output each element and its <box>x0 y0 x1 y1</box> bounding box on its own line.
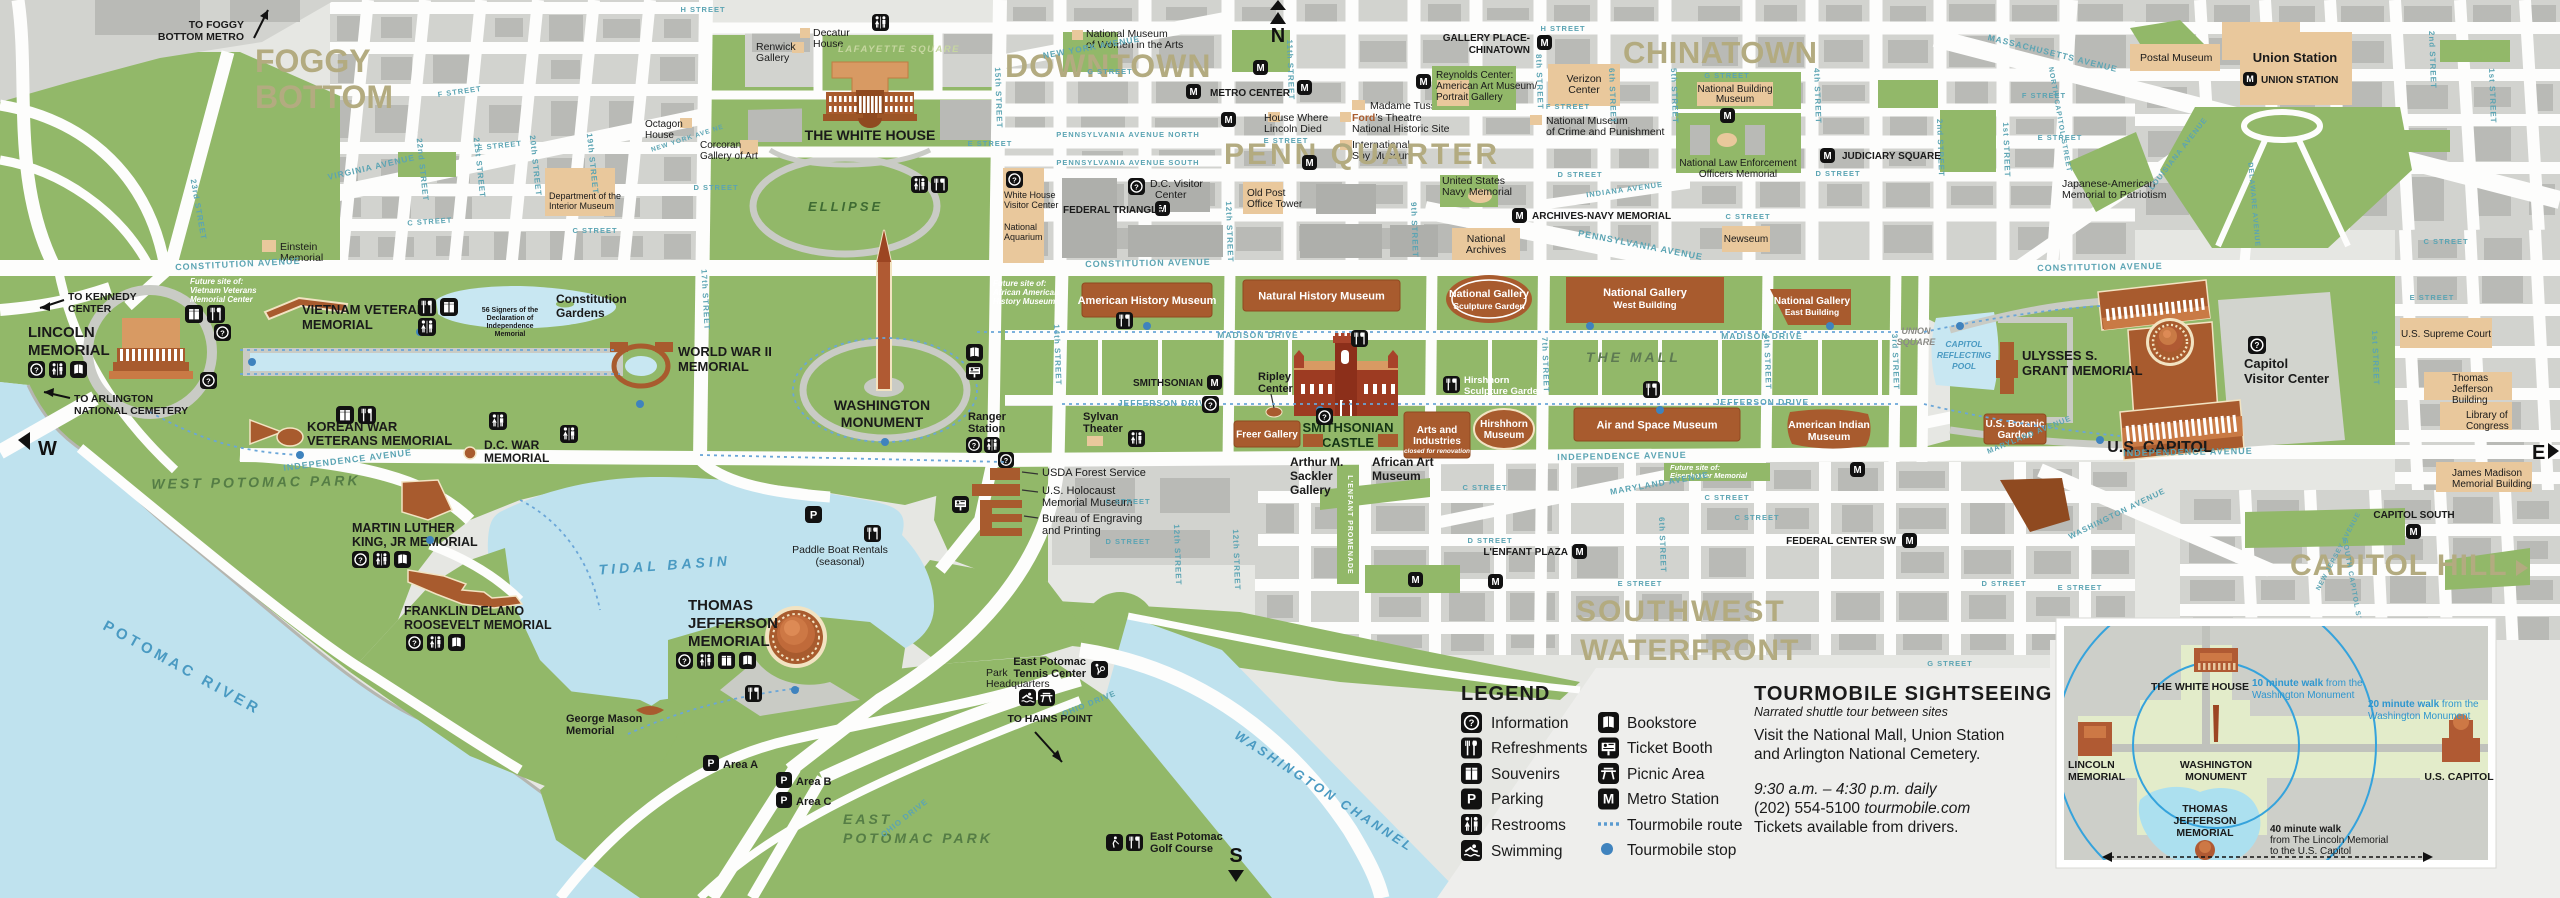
svg-text:Newseum: Newseum <box>1724 234 1768 245</box>
svg-text:LEGEND: LEGEND <box>1461 683 1550 705</box>
svg-text:D STREET: D STREET <box>1981 579 2026 588</box>
svg-text:MEMORIAL: MEMORIAL <box>302 317 373 332</box>
svg-text:PENNSYLVANIA AVENUE NORTH: PENNSYLVANIA AVENUE NORTH <box>1056 130 1200 139</box>
svg-text:40 minute walk: 40 minute walk <box>2270 824 2342 835</box>
svg-text:9:30 a.m. – 4:30 p.m. daily: 9:30 a.m. – 4:30 p.m. daily <box>1754 781 1938 798</box>
svg-text:JEFFERSON: JEFFERSON <box>688 615 778 632</box>
svg-text:TO ARLINGTON: TO ARLINGTON <box>74 393 153 405</box>
svg-text:POOL: POOL <box>1952 361 1976 371</box>
svg-text:?: ? <box>34 365 39 374</box>
svg-text:National Gallery: National Gallery <box>1603 287 1688 299</box>
svg-text:20 minute walk from the: 20 minute walk from the <box>2368 699 2479 710</box>
svg-text:POTOMAC PARK: POTOMAC PARK <box>843 830 993 846</box>
svg-text:?: ? <box>1322 412 1327 421</box>
svg-text:PENNSYLVANIA AVENUE SOUTH: PENNSYLVANIA AVENUE SOUTH <box>1056 158 1199 167</box>
svg-text:Reynolds Center:: Reynolds Center: <box>1436 70 1513 81</box>
svg-text:?: ? <box>972 441 976 450</box>
svg-text:?: ? <box>1004 456 1008 465</box>
svg-text:Restrooms: Restrooms <box>1491 817 1566 834</box>
svg-text:closed for renovation: closed for renovation <box>1404 448 1470 455</box>
svg-text:ROOSEVELT MEMORIAL: ROOSEVELT MEMORIAL <box>404 618 552 632</box>
svg-text:USDA Forest Service: USDA Forest Service <box>1042 467 1146 479</box>
svg-text:FEDERAL CENTER SW: FEDERAL CENTER SW <box>1786 536 1896 547</box>
svg-text:Museum: Museum <box>1372 469 1421 483</box>
svg-text:P: P <box>708 759 715 770</box>
svg-text:Union Station: Union Station <box>2253 50 2338 65</box>
svg-text:N: N <box>1271 25 1285 47</box>
svg-text:VETERANS MEMORIAL: VETERANS MEMORIAL <box>307 433 452 448</box>
svg-text:TOURMOBILE SIGHTSEEING: TOURMOBILE SIGHTSEEING <box>1754 683 2052 705</box>
svg-text:D STREET: D STREET <box>1105 537 1150 546</box>
svg-text:Memorial Center: Memorial Center <box>190 295 254 304</box>
svg-text:E STREET: E STREET <box>2058 583 2103 592</box>
svg-text:Arthur M.: Arthur M. <box>1290 455 1343 469</box>
svg-text:S: S <box>1229 845 1242 867</box>
svg-text:Library of: Library of <box>2466 410 2508 421</box>
svg-text:Memorial to Patriotism: Memorial to Patriotism <box>2062 189 2167 201</box>
svg-text:CAPITOL SOUTH: CAPITOL SOUTH <box>2373 510 2454 521</box>
svg-text:D STREET: D STREET <box>693 183 738 192</box>
svg-text:Freer Gallery: Freer Gallery <box>1236 430 1298 441</box>
svg-text:Area A: Area A <box>723 759 758 771</box>
svg-text:Old Post: Old Post <box>1247 188 1286 199</box>
svg-text:FEDERAL TRIANGLE: FEDERAL TRIANGLE <box>1063 205 1164 216</box>
svg-text:Department of the: Department of the <box>549 191 621 201</box>
svg-text:TO FOGGY: TO FOGGY <box>189 19 244 31</box>
svg-text:Hirshhorn: Hirshhorn <box>1464 375 1510 386</box>
svg-text:H STREET: H STREET <box>1540 24 1585 33</box>
svg-text:Center: Center <box>1258 383 1294 395</box>
svg-text:?: ? <box>1469 718 1475 729</box>
svg-text:Sackler: Sackler <box>1290 469 1333 483</box>
svg-text:Constitution: Constitution <box>556 292 627 306</box>
svg-text:SOUTHWEST: SOUTHWEST <box>1576 595 1786 628</box>
svg-text:E STREET: E STREET <box>1264 136 1309 145</box>
svg-text:Sculpture Garden: Sculpture Garden <box>1464 386 1544 397</box>
svg-text:THOMAS: THOMAS <box>2182 803 2228 815</box>
svg-text:THE MALL: THE MALL <box>1586 349 1681 365</box>
svg-text:56 Signers of the: 56 Signers of the <box>482 307 539 314</box>
svg-text:West Building: West Building <box>1613 300 1676 311</box>
svg-text:House: House <box>645 130 674 141</box>
svg-text:WASHINGTON: WASHINGTON <box>2180 759 2252 771</box>
svg-text:History Museum: History Museum <box>993 297 1055 306</box>
svg-text:Office Tower: Office Tower <box>1247 199 1303 210</box>
svg-text:G STREET: G STREET <box>1704 71 1750 80</box>
svg-text:M: M <box>1300 83 1308 94</box>
svg-text:National: National <box>1004 222 1037 232</box>
svg-text:Souvenirs: Souvenirs <box>1491 766 1560 783</box>
svg-text:U.S. Holocaust: U.S. Holocaust <box>1042 485 1115 497</box>
svg-text:?: ? <box>412 638 417 647</box>
svg-text:George Mason: George Mason <box>566 713 643 725</box>
svg-text:G STREET: G STREET <box>1087 67 1133 76</box>
svg-text:C STREET: C STREET <box>1704 493 1749 502</box>
svg-text:Tourmobile route: Tourmobile route <box>1627 817 1742 834</box>
svg-text:BOTTOM: BOTTOM <box>255 79 393 115</box>
svg-text:SQUARE: SQUARE <box>1897 337 1937 347</box>
svg-text:M: M <box>1419 77 1427 88</box>
svg-text:Metro Station: Metro Station <box>1627 791 1719 808</box>
svg-text:WATERFRONT: WATERFRONT <box>1580 634 1799 667</box>
svg-text:Memorial: Memorial <box>566 725 614 737</box>
svg-text:Gallery: Gallery <box>756 52 790 64</box>
svg-text:MEMORIAL: MEMORIAL <box>484 451 549 465</box>
svg-text:E STREET: E STREET <box>1618 579 1663 588</box>
svg-text:East Building: East Building <box>1785 307 1839 317</box>
svg-text:African Art: African Art <box>1372 455 1434 469</box>
svg-text:Sylvan: Sylvan <box>1083 411 1119 423</box>
svg-text:Gallery of Art: Gallery of Art <box>700 151 758 162</box>
svg-text:Refreshments: Refreshments <box>1491 740 1588 757</box>
svg-text:Visitor Center: Visitor Center <box>2244 371 2329 386</box>
svg-text:E STREET: E STREET <box>968 139 1013 148</box>
svg-text:MONUMENT: MONUMENT <box>2185 771 2247 783</box>
svg-text:FOGGY: FOGGY <box>255 43 371 79</box>
svg-text:CHINATOWN: CHINATOWN <box>1469 45 1530 56</box>
svg-text:Information: Information <box>1491 715 1569 732</box>
svg-text:Congress: Congress <box>2466 421 2509 432</box>
svg-text:M: M <box>1305 158 1313 169</box>
svg-text:C STREET: C STREET <box>1725 212 1770 221</box>
svg-text:?: ? <box>1012 175 1017 184</box>
svg-text:East Potomac: East Potomac <box>1013 656 1086 668</box>
svg-text:Golf Course: Golf Course <box>1150 843 1213 855</box>
svg-text:American Indian: American Indian <box>1788 419 1870 431</box>
svg-text:Officers Memorial: Officers Memorial <box>1699 169 1777 180</box>
svg-text:Bureau of Engraving: Bureau of Engraving <box>1042 513 1142 525</box>
svg-text:WORLD WAR II: WORLD WAR II <box>678 344 772 359</box>
svg-text:D STREET: D STREET <box>1557 170 1602 179</box>
svg-text:MARTIN LUTHER: MARTIN LUTHER <box>352 521 455 535</box>
svg-text:Center: Center <box>1568 84 1600 96</box>
svg-text:Archives: Archives <box>1466 244 1506 256</box>
svg-text:P: P <box>1467 792 1476 807</box>
svg-text:M: M <box>2246 74 2254 84</box>
svg-text:Vietnam Veterans: Vietnam Veterans <box>190 286 257 295</box>
svg-text:C STREET: C STREET <box>1105 497 1150 506</box>
svg-text:M: M <box>1575 547 1583 558</box>
svg-text:F STREET: F STREET <box>2022 91 2066 100</box>
svg-text:Area B: Area B <box>796 776 832 788</box>
svg-text:National Law Enforcement: National Law Enforcement <box>1679 158 1797 169</box>
svg-text:M: M <box>1853 465 1861 476</box>
svg-text:C STREET: C STREET <box>1734 513 1779 522</box>
svg-text:Parking: Parking <box>1491 791 1544 808</box>
svg-text:Narrated shuttle tour between: Narrated shuttle tour between sites <box>1754 705 1948 719</box>
svg-text:and Arlington National Cemeter: and Arlington National Cemetery. <box>1754 746 1980 763</box>
svg-text:M: M <box>2409 527 2417 538</box>
svg-text:Area C: Area C <box>796 796 832 808</box>
svg-text:CHINATOWN: CHINATOWN <box>1623 35 1818 70</box>
svg-text:Ripley: Ripley <box>1258 371 1292 383</box>
svg-text:Declaration of: Declaration of <box>487 315 534 322</box>
svg-text:to the U.S. Capitol: to the U.S. Capitol <box>2270 846 2351 857</box>
svg-text:DOWNTOWN: DOWNTOWN <box>1005 48 1211 84</box>
svg-text:LINCOLN: LINCOLN <box>2068 759 2115 771</box>
svg-text:National Gallery: National Gallery <box>1449 288 1529 300</box>
svg-text:?: ? <box>1134 182 1139 191</box>
svg-text:African American: African American <box>992 288 1059 297</box>
svg-text:Museum: Museum <box>1808 431 1851 443</box>
svg-text:MONUMENT: MONUMENT <box>841 414 924 430</box>
svg-text:Natural History Museum: Natural History Museum <box>1258 290 1385 302</box>
svg-text:Gardens: Gardens <box>556 306 605 320</box>
svg-text:Tennis Center: Tennis Center <box>1013 668 1086 680</box>
svg-text:Bookstore: Bookstore <box>1627 715 1697 732</box>
svg-text:MEMORIAL: MEMORIAL <box>688 633 770 650</box>
svg-text:M: M <box>1189 87 1197 98</box>
svg-text:L'ENFANT PROMENADE: L'ENFANT PROMENADE <box>1346 475 1353 574</box>
svg-text:MEMORIAL: MEMORIAL <box>678 359 749 374</box>
svg-text:Ticket Booth: Ticket Booth <box>1627 740 1713 757</box>
svg-text:MEMORIAL: MEMORIAL <box>28 342 110 359</box>
svg-text:Aquarium: Aquarium <box>1004 232 1043 242</box>
svg-text:Interior Museum: Interior Museum <box>549 201 614 211</box>
svg-text:Center: Center <box>1155 189 1187 201</box>
svg-text:Theater: Theater <box>1083 423 1123 435</box>
svg-text:Station: Station <box>968 423 1006 435</box>
svg-text:Ranger: Ranger <box>968 411 1007 423</box>
svg-text:CASTLE: CASTLE <box>1322 435 1374 450</box>
svg-text:M: M <box>1210 378 1218 389</box>
svg-text:Thomas: Thomas <box>2452 373 2488 384</box>
svg-text:Museum: Museum <box>1716 94 1754 105</box>
svg-text:Air and Space Museum: Air and Space Museum <box>1596 419 1717 431</box>
svg-text:F STREET: F STREET <box>1546 102 1590 111</box>
svg-text:METRO CENTER: METRO CENTER <box>1210 88 1291 99</box>
svg-text:East Potomac: East Potomac <box>1150 831 1223 843</box>
svg-text:Building: Building <box>2452 395 2488 406</box>
svg-text:Gallery: Gallery <box>1290 483 1331 497</box>
svg-text:SMITHSONIAN: SMITHSONIAN <box>1303 420 1394 435</box>
svg-text:ELLIPSE: ELLIPSE <box>808 199 883 214</box>
svg-text:James Madison: James Madison <box>2452 468 2522 479</box>
svg-text:M: M <box>1905 536 1913 547</box>
svg-text:Future site of:: Future site of: <box>190 277 244 286</box>
svg-text:CENTER: CENTER <box>68 303 112 315</box>
svg-text:GRANT MEMORIAL: GRANT MEMORIAL <box>2022 363 2143 378</box>
svg-text:Washington Monument: Washington Monument <box>2252 690 2355 701</box>
svg-text:(202) 554-5100 tourmobile.c: (202) 554-5100 tourmobile.com <box>1754 800 1970 817</box>
svg-text:EAST: EAST <box>843 811 892 827</box>
svg-text:TO HAINS POINT: TO HAINS POINT <box>1008 713 1094 725</box>
svg-text:Lincoln Died: Lincoln Died <box>1264 123 1322 135</box>
svg-text:THE WHITE HOUSE: THE WHITE HOUSE <box>805 127 936 143</box>
svg-text:American History Museum: American History Museum <box>1078 295 1217 307</box>
svg-text:?: ? <box>206 376 211 385</box>
svg-text:P: P <box>781 796 788 807</box>
svg-text:ARCHIVES-NAVY MEMORIAL: ARCHIVES-NAVY MEMORIAL <box>1532 211 1671 222</box>
svg-text:Portrait Gallery: Portrait Gallery <box>1436 92 1503 103</box>
svg-text:G STREET: G STREET <box>1927 659 1973 668</box>
svg-text:D STREET: D STREET <box>1815 169 1860 178</box>
svg-text:M: M <box>1823 151 1831 162</box>
svg-text:THOMAS: THOMAS <box>688 597 753 614</box>
svg-text:National Gallery: National Gallery <box>1774 296 1851 307</box>
svg-text:Visit the National Mall, Union: Visit the National Mall, Union Station <box>1754 727 2004 744</box>
svg-text:NATIONAL CEMETERY: NATIONAL CEMETERY <box>74 405 188 417</box>
svg-text:C STREET: C STREET <box>572 226 617 235</box>
svg-text:10 minute walk from the: 10 minute walk from the <box>2252 678 2363 689</box>
svg-text:(seasonal): (seasonal) <box>815 556 864 568</box>
svg-text:Navy Memorial: Navy Memorial <box>1442 186 1512 198</box>
svg-text:?: ? <box>2255 341 2260 350</box>
svg-text:TO KENNEDY: TO KENNEDY <box>68 291 137 303</box>
svg-text:Independence: Independence <box>486 323 533 330</box>
svg-text:W: W <box>38 438 57 460</box>
svg-text:Capitol: Capitol <box>2244 356 2288 371</box>
svg-text:Tourmobile stop: Tourmobile stop <box>1627 842 1736 859</box>
svg-text:E STREET: E STREET <box>2038 133 2083 142</box>
svg-text:Memorial: Memorial <box>495 331 526 338</box>
svg-text:Octagon: Octagon <box>645 119 683 130</box>
svg-text:M: M <box>1540 38 1548 49</box>
svg-text:M: M <box>1515 211 1523 222</box>
svg-text:M: M <box>1723 111 1731 122</box>
svg-text:Corcoran: Corcoran <box>700 140 741 151</box>
svg-text:JUDICIARY SQUARE: JUDICIARY SQUARE <box>1842 151 1941 162</box>
svg-text:LINCOLN: LINCOLN <box>28 324 95 341</box>
svg-text:THE WHITE HOUSE: THE WHITE HOUSE <box>2151 681 2249 693</box>
svg-text:Museum: Museum <box>1484 430 1525 441</box>
svg-text:?: ? <box>682 656 687 665</box>
svg-text:M: M <box>1411 575 1419 586</box>
svg-text:U.S. CAPITOL: U.S. CAPITOL <box>2424 771 2494 783</box>
svg-text:Postal Museum: Postal Museum <box>2140 52 2213 64</box>
svg-text:MEMORIAL: MEMORIAL <box>2176 827 2234 839</box>
svg-text:Memorial Building: Memorial Building <box>2452 479 2531 490</box>
svg-text:BOTTOM METRO: BOTTOM METRO <box>158 31 244 43</box>
svg-text:JEFFERSON: JEFFERSON <box>2173 815 2236 827</box>
svg-text:SMITHSONIAN: SMITHSONIAN <box>1133 378 1203 389</box>
svg-text:L'ENFANT PLAZA: L'ENFANT PLAZA <box>1483 547 1568 558</box>
svg-text:National Historic Site: National Historic Site <box>1352 123 1450 135</box>
svg-text:JEFFERSON DRIVE: JEFFERSON DRIVE <box>1118 398 1212 408</box>
svg-text:CAPITOL: CAPITOL <box>1945 339 1982 349</box>
svg-text:Swimming: Swimming <box>1491 843 1562 860</box>
svg-text:ULYSSES S.: ULYSSES S. <box>2022 348 2097 363</box>
svg-text:REFLECTING: REFLECTING <box>1937 350 1992 360</box>
svg-text:LAFAYETTE SQUARE: LAFAYETTE SQUARE <box>838 44 960 55</box>
svg-text:Future site of:: Future site of: <box>993 279 1047 288</box>
svg-text:C STREET: C STREET <box>2423 237 2468 246</box>
svg-text:and Printing: and Printing <box>1042 525 1101 537</box>
svg-text:M: M <box>1603 792 1614 807</box>
svg-text:from The Lincoln Memorial: from The Lincoln Memorial <box>2270 835 2388 846</box>
svg-text:MEMORIAL: MEMORIAL <box>2068 771 2126 783</box>
svg-text:Industries: Industries <box>1413 436 1461 447</box>
svg-text:GALLERY PLACE-: GALLERY PLACE- <box>1443 33 1530 44</box>
svg-text:M: M <box>1256 63 1264 74</box>
svg-text:Hirshhorn: Hirshhorn <box>1480 419 1528 430</box>
svg-text:of Crime and Punishment: of Crime and Punishment <box>1546 126 1665 138</box>
svg-text:KING, JR MEMORIAL: KING, JR MEMORIAL <box>352 535 478 549</box>
svg-text:U.S. Supreme Court: U.S. Supreme Court <box>2401 329 2491 340</box>
svg-text:P: P <box>810 509 817 521</box>
svg-text:H STREET: H STREET <box>680 5 725 14</box>
svg-text:VIETNAM VETERANS: VIETNAM VETERANS <box>302 302 435 317</box>
svg-text:JEFFERSON DRIVE: JEFFERSON DRIVE <box>1715 397 1809 407</box>
svg-text:D.C. WAR: D.C. WAR <box>484 438 540 452</box>
svg-text:Washington Monument: Washington Monument <box>2368 711 2471 722</box>
svg-text:White House: White House <box>1004 190 1056 200</box>
svg-text:D STREET: D STREET <box>1467 536 1512 545</box>
svg-text:FRANKLIN DELANO: FRANKLIN DELANO <box>404 604 524 618</box>
svg-text:UNION STATION: UNION STATION <box>2261 75 2338 86</box>
svg-text:Visitor Center: Visitor Center <box>1004 200 1058 210</box>
svg-text:Picnic Area: Picnic Area <box>1627 766 1705 783</box>
svg-text:?: ? <box>220 328 225 337</box>
svg-text:E STREET: E STREET <box>2410 293 2455 302</box>
svg-text:Sculpture Garden: Sculpture Garden <box>1453 301 1524 311</box>
svg-text:E: E <box>2532 442 2545 464</box>
svg-text:WASHINGTON: WASHINGTON <box>834 397 930 413</box>
svg-text:M: M <box>1224 115 1232 126</box>
svg-text:?: ? <box>1208 400 1213 409</box>
svg-text:?: ? <box>358 555 363 564</box>
svg-text:Jefferson: Jefferson <box>2452 384 2493 395</box>
svg-text:Arts and: Arts and <box>1417 425 1458 436</box>
svg-text:P: P <box>781 776 788 787</box>
svg-text:C STREET: C STREET <box>1462 483 1507 492</box>
svg-text:M: M <box>1491 577 1499 588</box>
svg-text:Tickets available from drivers: Tickets available from drivers. <box>1754 819 1958 836</box>
svg-text:Paddle Boat Rentals: Paddle Boat Rentals <box>792 544 888 556</box>
svg-text:American Art Museum/: American Art Museum/ <box>1436 81 1537 92</box>
